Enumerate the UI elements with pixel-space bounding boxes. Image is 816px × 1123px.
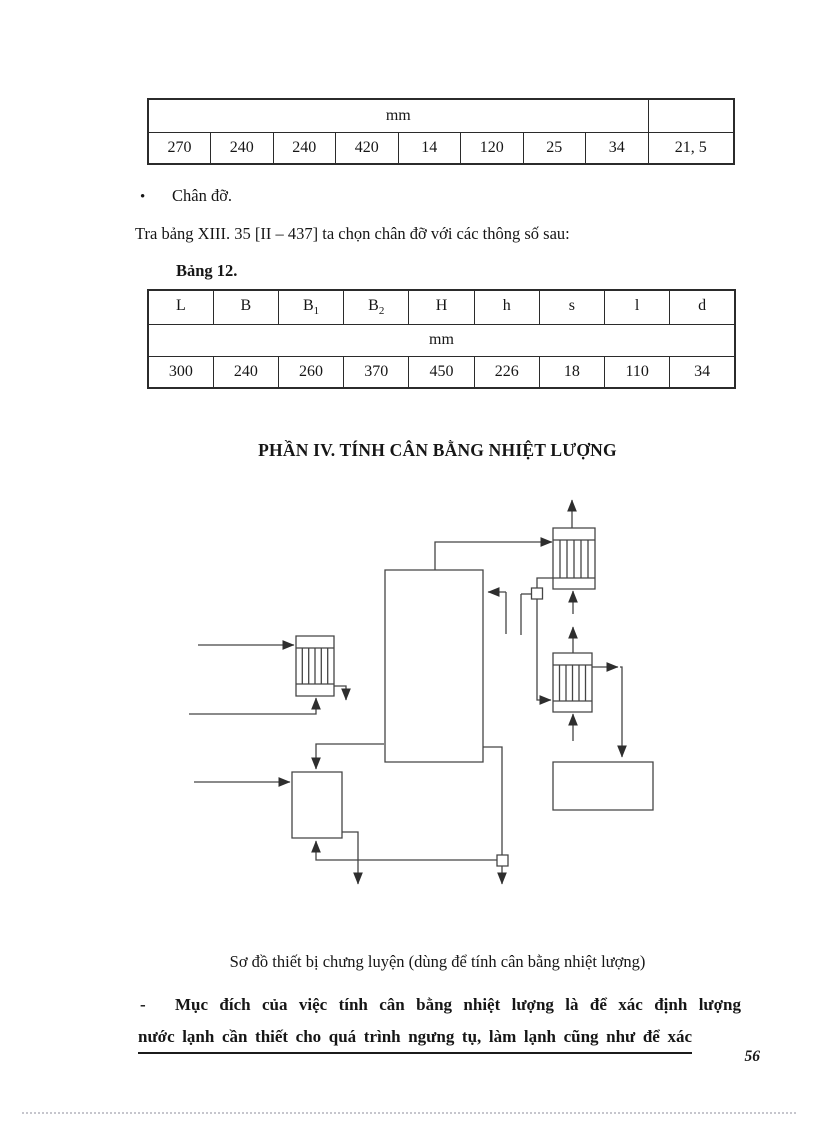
- condensate-line: [537, 578, 553, 588]
- table-header-cell: h: [474, 290, 539, 324]
- table-cell: 120: [461, 132, 524, 164]
- reboiler: [292, 772, 342, 838]
- table2-caption: Bảng 12.: [176, 261, 237, 281]
- table-cell: 240: [211, 132, 274, 164]
- bottoms-circulation-line: [316, 841, 497, 860]
- page-number: 56: [690, 1048, 760, 1066]
- support-lug-dimensions-table: mm 270 240 240 420 14 120 25 34 21, 5: [147, 98, 735, 165]
- pipe-junction-square: [497, 855, 508, 866]
- column-bottoms-line: [483, 747, 502, 855]
- table-header-cell: B1: [278, 290, 343, 324]
- body-paragraph: Tra bảng XIII. 35 [II – 437] ta chọn châ…: [135, 224, 570, 244]
- table1-unit-header: mm: [148, 99, 648, 132]
- table-cell: 240: [273, 132, 336, 164]
- bullet-dot-icon: •: [140, 189, 172, 206]
- table-header-cell: l: [605, 290, 670, 324]
- purpose-paragraph-line2: nước lạnh cần thiết cho quá trình ngưng …: [138, 1027, 692, 1054]
- table-cell: 260: [278, 356, 343, 388]
- table-header-cell: B: [213, 290, 278, 324]
- table-header-cell: d: [670, 290, 735, 324]
- paragraph-dash: -: [140, 995, 146, 1015]
- table-cell: 25: [523, 132, 586, 164]
- vapor-flow-line: [435, 542, 552, 570]
- preheater-outlet-arrow: [334, 686, 346, 700]
- purpose-paragraph-line1: Mục đích của việc tính cân bằng nhiệt lư…: [175, 995, 741, 1015]
- document-page: mm 270 240 240 420 14 120 25 34 21, 5 •C…: [0, 0, 816, 1123]
- section-title: PHẦN IV. TÍNH CÂN BẰNG NHIỆT LƯỢNG: [135, 440, 740, 461]
- table-cell: 21, 5: [648, 132, 734, 164]
- table-cell: 270: [148, 132, 211, 164]
- table-cell: 14: [398, 132, 461, 164]
- support-leg-dimensions-table: L B B1 B2 H h s l d mm 300 240 260 370 4…: [147, 289, 736, 389]
- pipe-junction-square: [532, 588, 543, 599]
- table-header-cell: B2: [344, 290, 409, 324]
- condenser: [553, 528, 595, 589]
- table-cell: 450: [409, 356, 474, 388]
- table-cell: 18: [539, 356, 604, 388]
- distillation-process-diagram: [180, 490, 660, 900]
- distillation-column: [385, 570, 483, 762]
- table1-empty-header-cell: [648, 99, 734, 132]
- distillate-cooler: [553, 653, 592, 712]
- table-cell: 300: [148, 356, 213, 388]
- table-cell: 34: [670, 356, 735, 388]
- distillate-line: [537, 599, 551, 700]
- product-flow-line: [620, 667, 622, 757]
- table-cell: 420: [336, 132, 399, 164]
- table-cell: 240: [213, 356, 278, 388]
- table-header-cell: H: [409, 290, 474, 324]
- table-cell: 34: [586, 132, 649, 164]
- reboiler-outlet-arrow: [342, 832, 358, 884]
- bullet-item-label: Chân đỡ.: [172, 186, 232, 205]
- figure-caption: Sơ đồ thiết bị chưng luyện (dùng để tính…: [135, 952, 740, 972]
- feed-preheater: [296, 636, 334, 696]
- table-header-cell: L: [148, 290, 213, 324]
- table-cell: 110: [605, 356, 670, 388]
- table-cell: 370: [344, 356, 409, 388]
- page-bottom-dotted-rule: [22, 1112, 796, 1114]
- table2-unit-row: mm: [148, 324, 735, 356]
- bottoms-to-reboiler-line: [316, 744, 384, 769]
- table-cell: 226: [474, 356, 539, 388]
- bullet-list-item: •Chân đỡ.: [140, 186, 232, 206]
- distillate-tank: [553, 762, 653, 810]
- table-header-cell: s: [539, 290, 604, 324]
- feed-line-to-preheater: [189, 698, 316, 714]
